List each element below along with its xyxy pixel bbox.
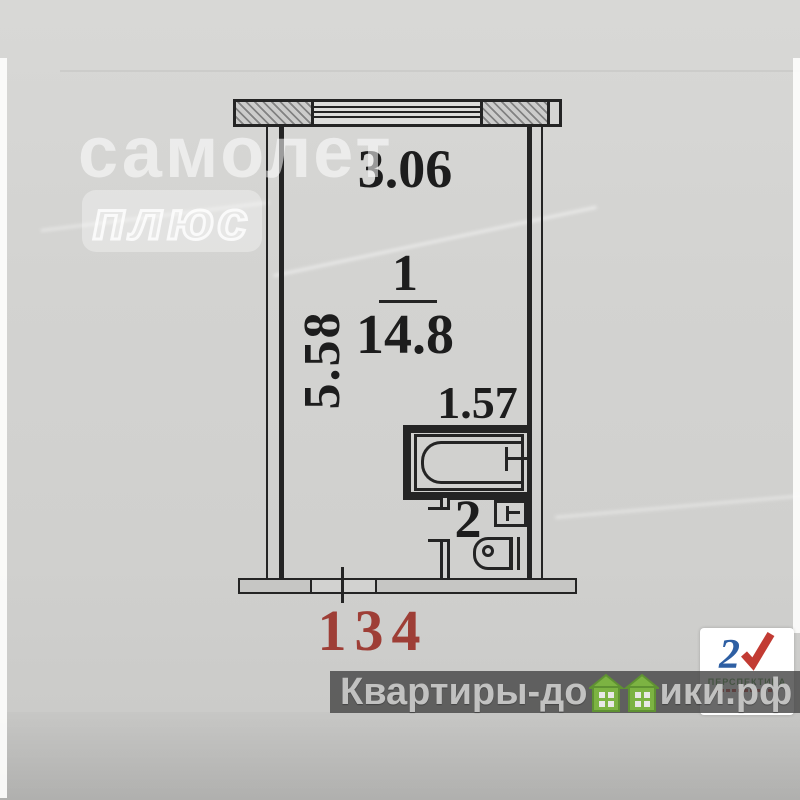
toilet-flush-circle bbox=[482, 545, 494, 557]
house-icon-left bbox=[590, 675, 622, 711]
floor-plan-photo: 3.06 1 14.8 5.58 1.57 2 134 самолет плюс… bbox=[0, 0, 800, 800]
watermark-plus: плюс bbox=[93, 190, 252, 252]
watermark-samolet: самолет bbox=[78, 112, 418, 194]
paper-crease bbox=[60, 70, 800, 72]
footer-site-prefix: Квартиры-до bbox=[340, 673, 588, 711]
bathtub-tap-icon bbox=[505, 457, 527, 460]
footer-site-suffix: ики.рф bbox=[660, 673, 793, 711]
dimension-bath-label: 1.57 bbox=[415, 380, 540, 426]
dimension-left-label: 5.58 bbox=[297, 295, 349, 425]
toilet-room-wall bbox=[440, 541, 450, 578]
room2-number: 2 bbox=[448, 492, 488, 546]
photo-edge-left bbox=[0, 58, 7, 798]
toilet-tank-line bbox=[509, 537, 512, 570]
house-icons bbox=[589, 672, 659, 712]
toilet-tank-line bbox=[517, 537, 520, 570]
wall-bottom bbox=[238, 578, 577, 594]
photo-edge-right bbox=[793, 58, 800, 633]
wall-pier-hatch-right bbox=[480, 102, 550, 124]
house-icon-right bbox=[626, 675, 658, 711]
room1-number: 1 bbox=[330, 248, 480, 300]
watermark-plus-badge: плюс bbox=[82, 190, 262, 252]
door-opening-tick-top bbox=[428, 507, 450, 510]
sink-tap-icon bbox=[506, 511, 520, 514]
door-opening-tick-bottom bbox=[428, 539, 450, 542]
photo-bottom-shadow bbox=[0, 712, 800, 800]
footer-watermark-band: Квартиры-до ики.рф bbox=[330, 671, 800, 713]
window-pane-line bbox=[314, 106, 480, 108]
fraction-line bbox=[379, 300, 437, 303]
wall-right bbox=[527, 124, 543, 578]
logo-check-icon bbox=[744, 634, 771, 664]
paper-crease bbox=[555, 494, 800, 519]
sink-icon bbox=[494, 500, 527, 527]
apartment-number: 134 bbox=[298, 602, 448, 660]
logo-mark-2: 2 bbox=[718, 632, 740, 676]
logo-24-icon: 2 bbox=[717, 628, 777, 676]
